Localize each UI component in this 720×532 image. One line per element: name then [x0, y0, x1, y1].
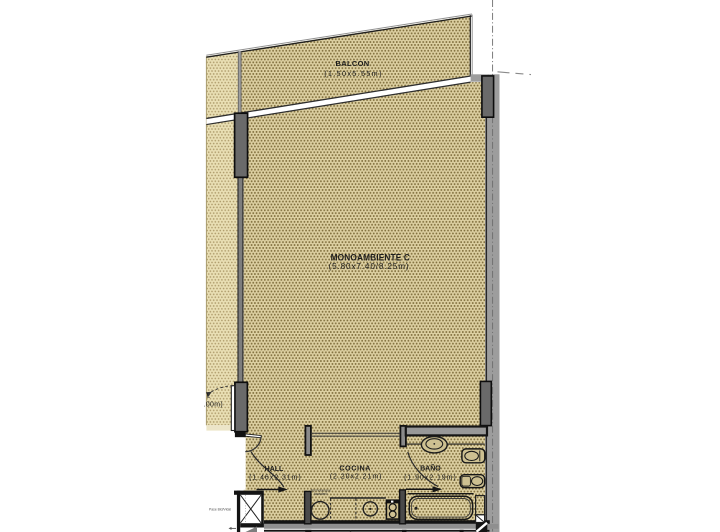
svg-text:BALCON: BALCON — [336, 59, 370, 68]
svg-text:lavadero: lavadero — [314, 492, 327, 496]
svg-text:COCINA: COCINA — [339, 464, 371, 473]
svg-text:(1.50x5.55m): (1.50x5.55m) — [324, 69, 383, 78]
svg-text:HALL: HALL — [265, 466, 284, 473]
svg-text:(1.90x2.19m): (1.90x2.19m) — [404, 475, 457, 482]
svg-text:(5.80x7.40/8.25m): (5.80x7.40/8.25m) — [329, 262, 410, 271]
svg-text:Pase Bld/Vidal: Pase Bld/Vidal — [209, 508, 231, 512]
svg-text:L: L — [207, 392, 211, 399]
svg-text:(2.20x2.21m): (2.20x2.21m) — [330, 473, 383, 480]
svg-text:.00m): .00m) — [204, 402, 224, 409]
svg-text:(1.46x2.31m): (1.46x2.31m) — [249, 474, 302, 481]
svg-text:BAÑO: BAÑO — [420, 464, 441, 473]
